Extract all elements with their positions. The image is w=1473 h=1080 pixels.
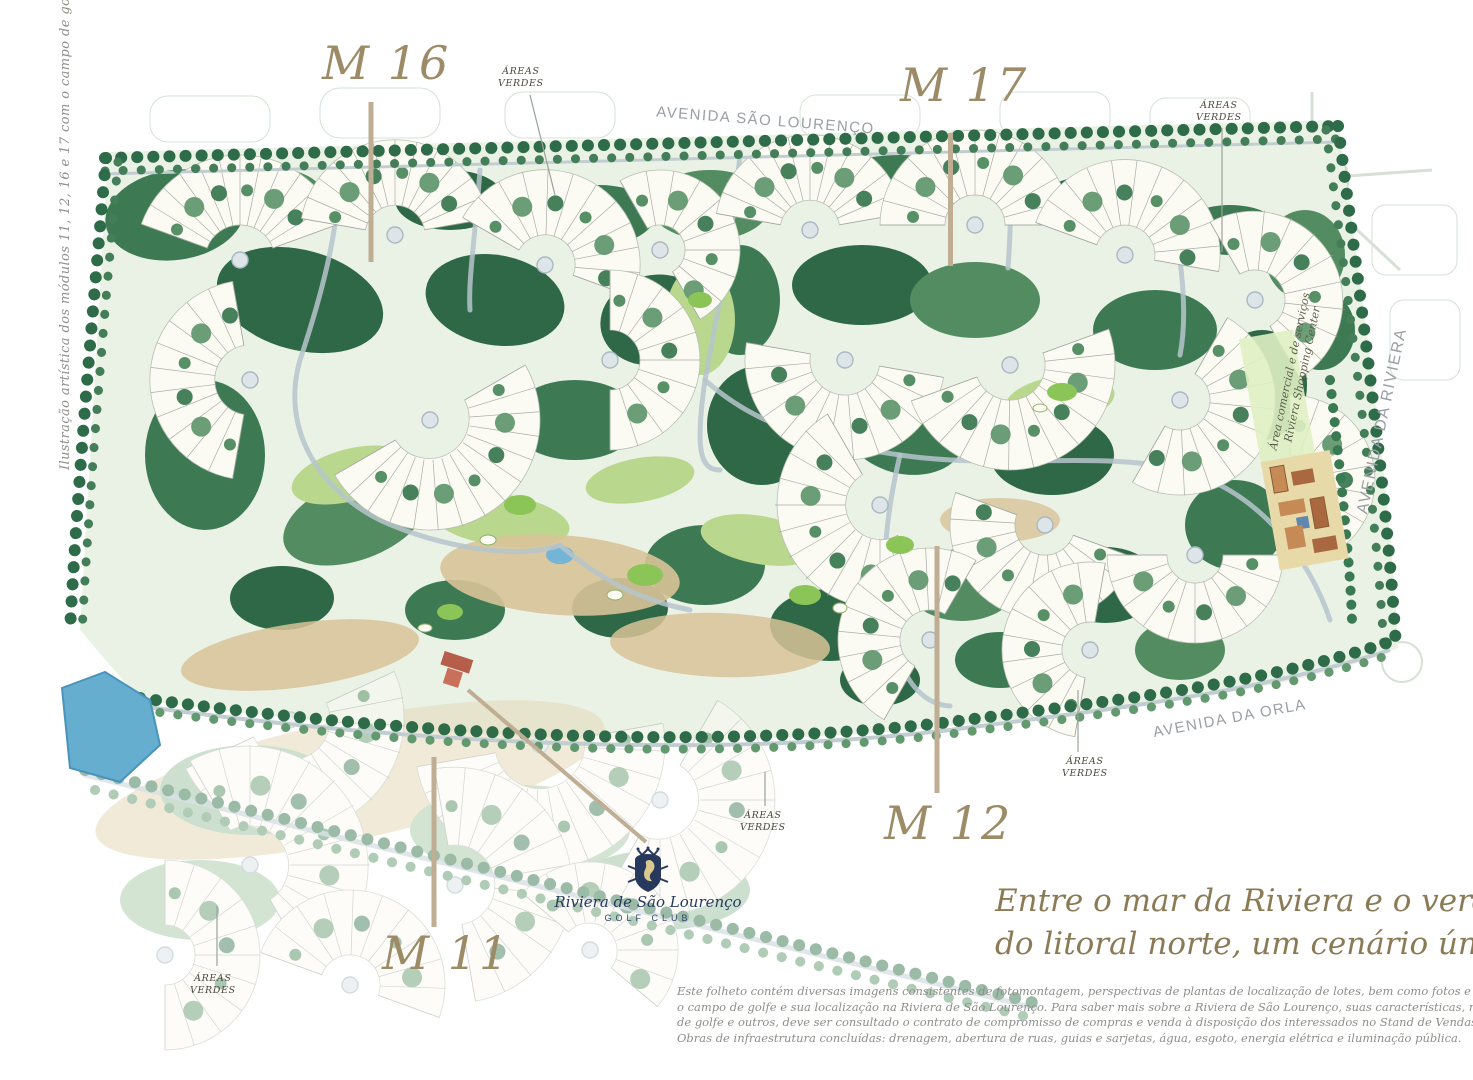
tagline-line1: Entre o mar da Riviera e o verde [995, 880, 1435, 923]
areas-verdes-label: ÁREAS VERDES [498, 66, 544, 90]
areas-verdes-line1: ÁREAS [1062, 756, 1108, 768]
areas-verdes-line1: ÁREAS [498, 66, 544, 78]
areas-verdes-line1: ÁREAS [740, 810, 786, 822]
brochure-page: Ilustração artística dos módulos 11, 12,… [0, 0, 1473, 1080]
illustration-caption: Ilustração artística dos módulos 11, 12,… [58, 90, 73, 470]
areas-verdes-line2: VERDES [498, 78, 544, 90]
disclaimer-line: Obras de infraestrutura concluídas: dren… [677, 1031, 1447, 1047]
areas-verdes-line1: ÁREAS [190, 973, 236, 985]
areas-verdes-line2: VERDES [190, 985, 236, 997]
disclaimer: Este folheto contém diversas imagens con… [677, 984, 1447, 1046]
areas-verdes-line2: VERDES [1196, 112, 1242, 124]
areas-verdes-line2: VERDES [1062, 768, 1108, 780]
tagline: Entre o mar da Riviera e o verde do lito… [995, 880, 1435, 966]
areas-verdes-label: ÁREAS VERDES [1196, 100, 1242, 124]
disclaimer-line: de golfe e outros, deve ser consultado o… [677, 1015, 1447, 1031]
module-label-m12: M 12 [884, 796, 1012, 850]
golf-club-name: Riviera de São Lourenço [538, 893, 758, 911]
disclaimer-line: o campo de golfe e sua localização na Ri… [677, 1000, 1447, 1016]
module-label-m17: M 17 [900, 58, 1028, 112]
module-label-m11: M 11 [382, 926, 510, 980]
module-label-m16: M 16 [322, 36, 450, 90]
golf-club-subtitle: GOLF CLUB [538, 913, 758, 923]
areas-verdes-label: ÁREAS VERDES [1062, 756, 1108, 780]
areas-verdes-line1: ÁREAS [1196, 100, 1242, 112]
disclaimer-line: Este folheto contém diversas imagens con… [677, 984, 1447, 1000]
areas-verdes-label: ÁREAS VERDES [740, 810, 786, 834]
tagline-line2: do litoral norte, um cenário único. [995, 923, 1435, 966]
areas-verdes-label: ÁREAS VERDES [190, 973, 236, 997]
areas-verdes-line2: VERDES [740, 822, 786, 834]
